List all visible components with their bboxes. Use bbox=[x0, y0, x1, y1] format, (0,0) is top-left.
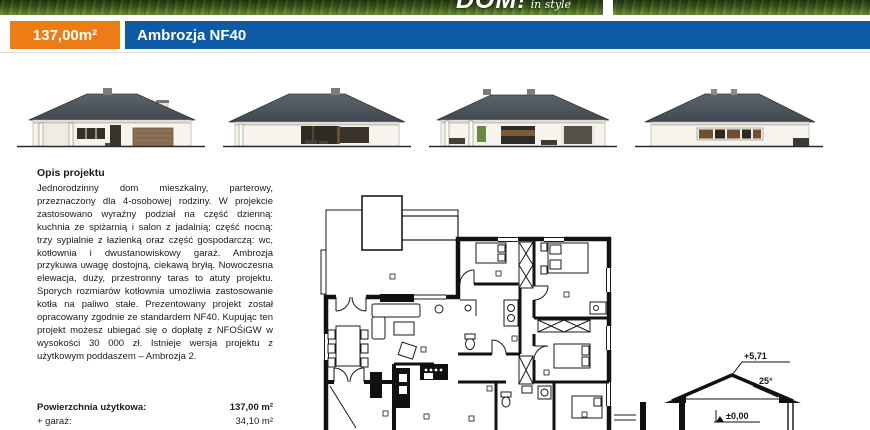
garage-area-row: + garaż: 34,10 m² bbox=[37, 415, 273, 429]
floorplan-drawing bbox=[296, 186, 648, 430]
cross-section-drawing: +5,71 25° ±0,00 bbox=[650, 340, 870, 430]
ridge-level-label: +5,71 bbox=[744, 351, 767, 361]
areas-table: Powierzchnia użytkowa: 137,00 m² + garaż… bbox=[37, 401, 273, 430]
photo-strip: DOM!in style bbox=[0, 0, 870, 15]
usable-area-row: Powierzchnia użytkowa: 137,00 m² bbox=[37, 401, 273, 415]
elevation-left-side-drawing bbox=[626, 86, 832, 152]
usable-area-value: 137,00 m² bbox=[230, 401, 273, 415]
usable-area-label: Powierzchnia użytkowa: bbox=[37, 401, 146, 415]
garage-area-label: + garaż: bbox=[37, 415, 72, 429]
page-title: Ambrozja NF40 bbox=[125, 21, 870, 49]
grass-photo-right bbox=[613, 0, 870, 15]
garage-area-value: 34,10 m² bbox=[236, 415, 274, 429]
zero-level-label: ±0,00 bbox=[726, 411, 748, 421]
elevations-row bbox=[8, 86, 862, 152]
logo-text: DOM! bbox=[456, 0, 527, 14]
header-divider bbox=[0, 52, 870, 53]
description-body: Jednorodzinny dom mieszkalny, parterowy,… bbox=[37, 183, 273, 364]
description-heading: Opis projektu bbox=[37, 167, 273, 179]
elevation-front-drawing bbox=[8, 86, 214, 152]
area-badge: 137,00m² bbox=[10, 21, 120, 49]
dom-instyle-logo: DOM!in style bbox=[456, 0, 571, 15]
elevation-right-side-drawing bbox=[214, 86, 420, 152]
elevation-rear-drawing bbox=[420, 86, 626, 152]
logo-suffix: in style bbox=[531, 0, 571, 11]
project-description: Opis projektu Jednorodzinny dom mieszkal… bbox=[37, 167, 273, 364]
roof-angle-label: 25° bbox=[759, 376, 773, 386]
